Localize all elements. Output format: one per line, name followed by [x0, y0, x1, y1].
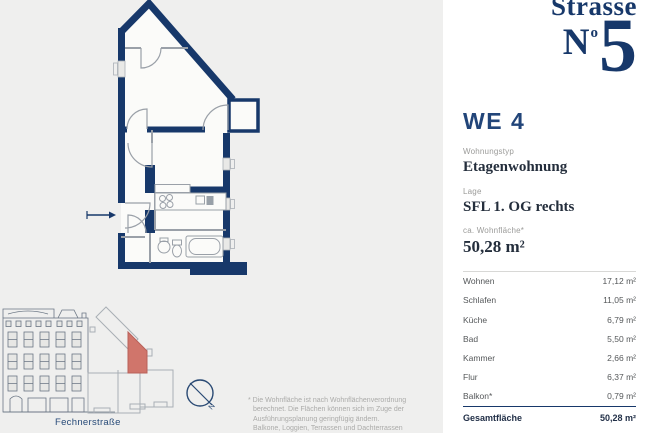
room-name: Schlafen — [463, 291, 570, 310]
room-area: 2,66 m² — [570, 348, 636, 367]
field-value: SFL 1. OG rechts — [463, 199, 636, 216]
brand-logo: Strasse N o 5 — [551, 0, 637, 80]
brand-logo-o: o — [591, 26, 599, 41]
field-label: Lage — [463, 187, 636, 196]
room-name: Küche — [463, 310, 570, 329]
room-name: Kammer — [463, 348, 570, 367]
entry-arrow-icon — [87, 211, 116, 219]
balcony — [229, 100, 258, 131]
table-row: Balkon* 0,79 m² — [463, 387, 636, 407]
room-area: 17,12 m² — [570, 271, 636, 291]
table-total-row: Gesamtfläche 50,28 m² — [463, 407, 636, 428]
room-name: Balkon* — [463, 387, 570, 407]
field-label: ca. Wohnfläche* — [463, 226, 636, 235]
room-area: 6,79 m² — [570, 310, 636, 329]
north-label: N — [206, 401, 216, 411]
footnote-line: berechnet. Die Flächen können sich im Zu… — [248, 405, 444, 414]
street-label: Fechnerstraße — [55, 417, 121, 428]
footnote-line: Ausführungsplanung geringfügig ändern. — [248, 415, 444, 424]
table-row: Bad 5,50 m² — [463, 329, 636, 348]
building-facade — [3, 309, 115, 412]
page: N Fechnerstraße * Die Wohnfläche ist nac… — [0, 0, 650, 433]
room-name: Wohnen — [463, 271, 570, 291]
compass-icon: N — [187, 380, 217, 412]
brand-logo-n: N — [563, 24, 590, 61]
unit-title: WE 4 — [463, 108, 636, 135]
table-row: Küche 6,79 m² — [463, 310, 636, 329]
footnote: * Die Wohnfläche ist nach Wohnflächenver… — [248, 396, 444, 433]
total-area: 50,28 m² — [570, 407, 636, 428]
total-name: Gesamtfläche — [463, 407, 570, 428]
field-wohnflaeche: ca. Wohnfläche* 50,28 m² — [463, 226, 636, 257]
table-row: Kammer 2,66 m² — [463, 348, 636, 367]
location-graphics: N — [0, 300, 240, 433]
room-area: 6,37 m² — [570, 368, 636, 387]
floor-plan — [85, 0, 265, 292]
field-value: 50,28 m² — [463, 238, 636, 257]
room-name: Flur — [463, 368, 570, 387]
room-area: 0,79 m² — [570, 387, 636, 407]
table-row: Wohnen 17,12 m² — [463, 271, 636, 291]
field-lage: Lage SFL 1. OG rechts — [463, 187, 636, 216]
unit-details: WE 4 Wohnungstyp Etagenwohnung Lage SFL … — [463, 108, 636, 428]
rooms-table: Wohnen 17,12 m² Schlafen 11,05 m² Küche … — [463, 271, 636, 428]
field-label: Wohnungstyp — [463, 147, 636, 156]
footnote-line: Balkone, Loggien, Terrassen und Dachterr… — [248, 424, 444, 433]
room-area: 11,05 m² — [570, 291, 636, 310]
wall-chunk — [190, 262, 247, 275]
details-panel: Strasse N o 5 WE 4 Wohnungstyp Etagenwoh… — [443, 0, 650, 433]
room-area: 5,50 m² — [570, 329, 636, 348]
brand-logo-number: 5 — [599, 12, 637, 80]
field-value: Etagenwohnung — [463, 159, 636, 176]
passage — [155, 185, 190, 193]
kitchen-fixtures — [155, 193, 226, 210]
table-row: Schlafen 11,05 m² — [463, 291, 636, 310]
footnote-line: * Die Wohnfläche ist nach Wohnflächenver… — [248, 396, 444, 405]
field-wohnungstyp: Wohnungstyp Etagenwohnung — [463, 147, 636, 176]
room-name: Bad — [463, 329, 570, 348]
table-row: Flur 6,37 m² — [463, 368, 636, 387]
